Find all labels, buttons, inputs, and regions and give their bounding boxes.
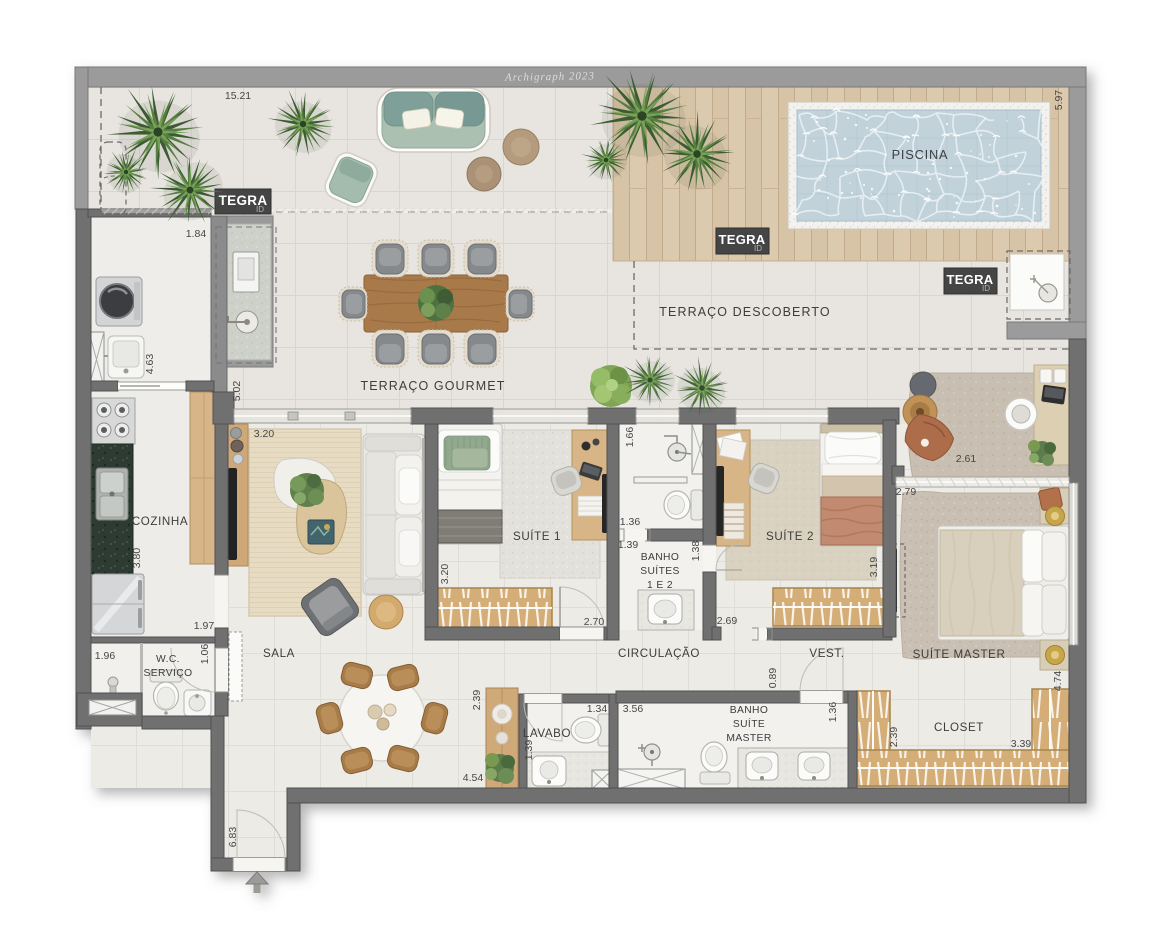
- svg-text:CLOSET: CLOSET: [934, 721, 984, 734]
- svg-text:MASTER: MASTER: [726, 733, 771, 744]
- svg-text:ID: ID: [754, 244, 762, 253]
- svg-text:2.39: 2.39: [888, 727, 900, 748]
- svg-text:ID: ID: [982, 284, 990, 293]
- svg-text:SUÍTE MASTER: SUÍTE MASTER: [913, 648, 1006, 661]
- svg-text:SALA: SALA: [263, 647, 295, 660]
- svg-text:3.39: 3.39: [1011, 738, 1032, 750]
- svg-text:1.34: 1.34: [587, 703, 608, 715]
- svg-text:1.06: 1.06: [199, 644, 211, 665]
- svg-text:5.02: 5.02: [231, 381, 243, 402]
- svg-text:15.21: 15.21: [225, 90, 251, 102]
- svg-text:1.97: 1.97: [194, 620, 215, 632]
- svg-text:SERVIÇO: SERVIÇO: [144, 668, 193, 679]
- svg-text:3.19: 3.19: [868, 557, 880, 578]
- svg-text:5.97: 5.97: [1053, 90, 1065, 111]
- svg-text:1.38: 1.38: [690, 541, 702, 562]
- svg-text:2.61: 2.61: [956, 453, 977, 465]
- svg-text:TERRAÇO DESCOBERTO: TERRAÇO DESCOBERTO: [659, 305, 830, 319]
- svg-text:2.70: 2.70: [584, 616, 605, 628]
- svg-text:3.20: 3.20: [439, 564, 451, 585]
- svg-text:0.89: 0.89: [767, 668, 779, 689]
- svg-text:1.39: 1.39: [523, 740, 535, 761]
- svg-text:1.84: 1.84: [186, 228, 207, 240]
- svg-text:1.36: 1.36: [620, 516, 641, 528]
- svg-text:ID: ID: [256, 205, 264, 214]
- svg-text:TERRAÇO GOURMET: TERRAÇO GOURMET: [361, 379, 506, 393]
- svg-text:4.74: 4.74: [1052, 671, 1064, 692]
- svg-text:SUÍTE 1: SUÍTE 1: [513, 530, 561, 543]
- svg-text:4.54: 4.54: [463, 772, 484, 784]
- svg-text:2.39: 2.39: [471, 690, 483, 711]
- svg-text:CIRCULAÇÃO: CIRCULAÇÃO: [618, 647, 700, 660]
- svg-text:Archigraph 2023: Archigraph 2023: [504, 70, 595, 84]
- svg-text:1.96: 1.96: [95, 650, 116, 662]
- svg-text:3.56: 3.56: [623, 703, 644, 715]
- svg-text:4.63: 4.63: [144, 354, 156, 375]
- svg-text:2.69: 2.69: [717, 615, 738, 627]
- svg-text:1 E 2: 1 E 2: [647, 580, 673, 591]
- svg-text:W.C.: W.C.: [156, 654, 180, 665]
- svg-text:PISCINA: PISCINA: [892, 147, 949, 162]
- svg-text:2.79: 2.79: [896, 486, 917, 498]
- svg-text:LAVABO: LAVABO: [523, 727, 571, 740]
- svg-text:1.66: 1.66: [624, 427, 636, 448]
- svg-text:3.80: 3.80: [131, 548, 143, 569]
- svg-text:BANHO: BANHO: [730, 705, 769, 716]
- svg-text:1.36: 1.36: [827, 702, 839, 723]
- svg-text:SUÍTE 2: SUÍTE 2: [766, 530, 814, 543]
- svg-text:VEST.: VEST.: [809, 647, 844, 660]
- svg-text:BANHO: BANHO: [641, 552, 680, 563]
- svg-text:SUÍTE: SUÍTE: [733, 717, 765, 730]
- svg-text:COZINHA: COZINHA: [132, 515, 188, 528]
- svg-text:SUÍTES: SUÍTES: [640, 564, 680, 577]
- svg-text:6.83: 6.83: [227, 827, 239, 848]
- svg-text:1.39: 1.39: [618, 539, 639, 551]
- svg-text:3.20: 3.20: [254, 428, 275, 440]
